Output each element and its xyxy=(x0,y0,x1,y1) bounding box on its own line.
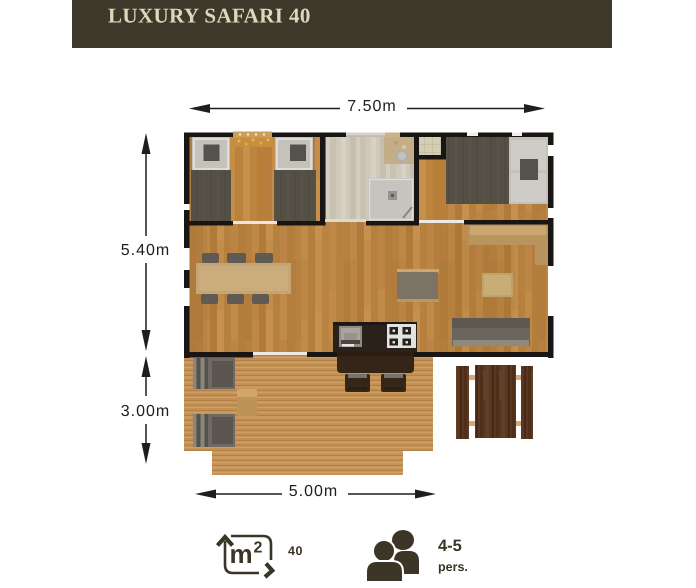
svg-text:40: 40 xyxy=(288,544,303,558)
svg-text:5.40m: 5.40m xyxy=(121,242,170,259)
svg-text:2: 2 xyxy=(254,540,263,557)
svg-text:4-5: 4-5 xyxy=(438,537,462,555)
svg-text:LUXURY SAFARI 40: LUXURY SAFARI 40 xyxy=(108,4,311,28)
svg-text:pers.: pers. xyxy=(438,560,468,574)
svg-text:3.00m: 3.00m xyxy=(121,403,170,420)
svg-text:7.50m: 7.50m xyxy=(347,98,396,115)
svg-text:m: m xyxy=(230,539,253,569)
svg-text:5.00m: 5.00m xyxy=(289,483,338,500)
